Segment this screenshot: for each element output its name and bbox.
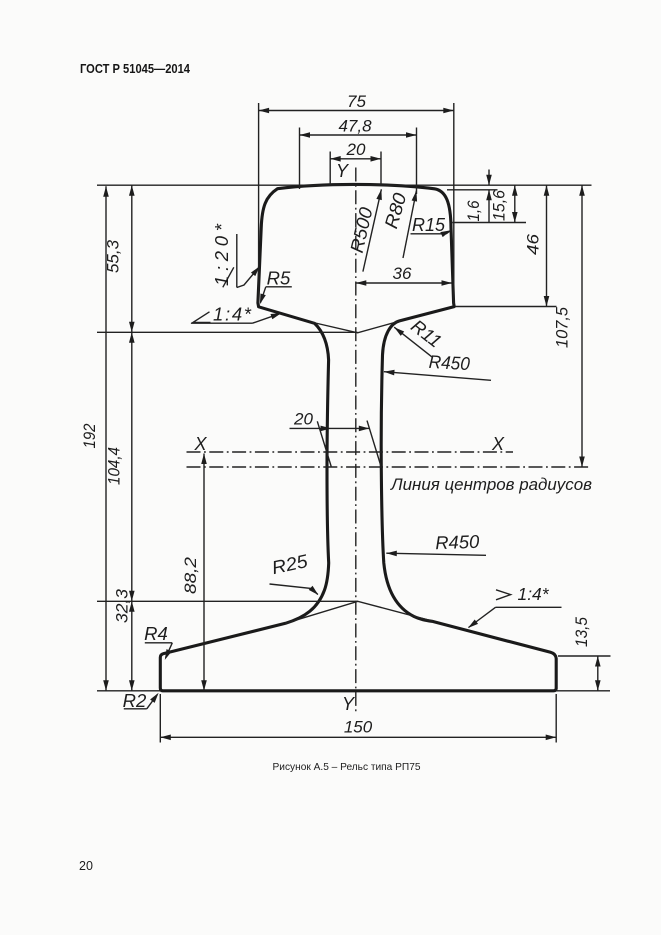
svg-text:R11: R11	[407, 315, 446, 352]
svg-text:R25: R25	[270, 550, 310, 578]
svg-text:R80: R80	[380, 190, 410, 231]
svg-text:150: 150	[344, 718, 373, 737]
svg-text:20: 20	[79, 859, 93, 873]
svg-text:15,6: 15,6	[490, 189, 509, 221]
svg-text:Y: Y	[336, 161, 350, 181]
svg-text:R4: R4	[144, 623, 168, 644]
svg-text:R5: R5	[267, 268, 291, 289]
svg-text:20: 20	[346, 140, 366, 159]
svg-text:ГОСТ Р 51045—2014: ГОСТ Р 51045—2014	[80, 62, 190, 76]
svg-text:1:20*: 1:20*	[211, 223, 232, 286]
svg-text:R2: R2	[123, 690, 147, 711]
svg-text:1:4*: 1:4*	[213, 304, 252, 325]
svg-text:R450: R450	[428, 351, 471, 374]
svg-text:47,8: 47,8	[338, 117, 372, 136]
svg-text:Линия центров радиусов: Линия центров радиусов	[390, 475, 592, 494]
svg-text:46: 46	[524, 233, 543, 255]
svg-text:X: X	[193, 434, 207, 454]
svg-text:88,2: 88,2	[181, 556, 200, 594]
svg-text:75: 75	[347, 92, 366, 111]
svg-text:20: 20	[293, 410, 313, 429]
svg-text:104,4: 104,4	[105, 447, 124, 485]
svg-text:36: 36	[393, 264, 412, 283]
svg-text:107,5: 107,5	[553, 306, 572, 348]
svg-text:R450: R450	[435, 531, 480, 554]
svg-text:Y: Y	[342, 694, 356, 714]
svg-text:55,3: 55,3	[104, 239, 123, 273]
svg-text:1:4*: 1:4*	[518, 584, 550, 604]
svg-text:X: X	[491, 434, 505, 454]
svg-text:1,6: 1,6	[464, 200, 483, 221]
svg-text:13,5: 13,5	[572, 617, 591, 647]
svg-text:R15: R15	[412, 214, 446, 235]
svg-text:Рисунок А.5 – Рельс типа РП75: Рисунок А.5 – Рельс типа РП75	[273, 761, 421, 773]
svg-text:192: 192	[80, 423, 99, 448]
svg-text:32,3: 32,3	[113, 588, 132, 623]
